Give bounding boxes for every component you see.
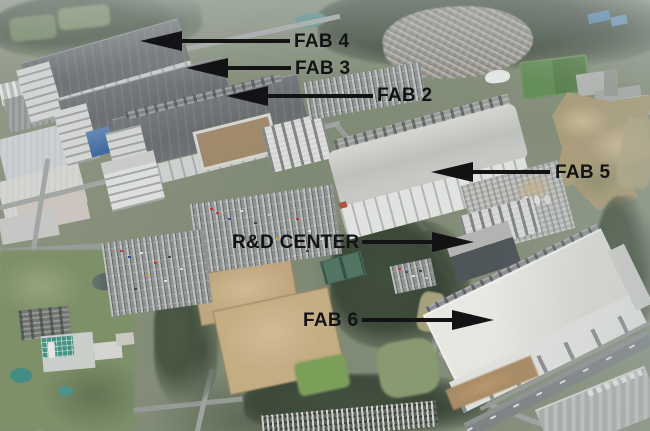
arrow-line-fab5 xyxy=(473,170,550,174)
annotation-label-rd-center: R&D CENTER xyxy=(232,233,360,252)
arrow-head-icon xyxy=(432,232,474,252)
annotation-label-fab2: FAB 2 xyxy=(377,86,432,105)
arrow-head-icon xyxy=(140,31,182,51)
arrow-line-fab3 xyxy=(228,66,291,70)
annotation-layer: FAB 4 FAB 3 FAB 2 FAB 5 R&D CENTER FAB 6 xyxy=(0,0,650,431)
arrow-head-icon xyxy=(452,310,494,330)
arrow-line-rd-center xyxy=(362,240,432,244)
arrow-head-icon xyxy=(186,58,228,78)
annotation-label-fab5: FAB 5 xyxy=(555,163,610,182)
arrow-head-icon xyxy=(226,86,268,106)
arrow-head-icon xyxy=(431,162,473,182)
arrow-line-fab6 xyxy=(362,318,452,322)
arrow-line-fab2 xyxy=(268,94,373,98)
annotation-label-fab6: FAB 6 xyxy=(303,311,358,330)
arrow-line-fab4 xyxy=(182,39,290,43)
annotation-label-fab4: FAB 4 xyxy=(294,32,349,51)
annotation-label-fab3: FAB 3 xyxy=(295,59,350,78)
aerial-photo: FAB 4 FAB 3 FAB 2 FAB 5 R&D CENTER FAB 6 xyxy=(0,0,650,431)
